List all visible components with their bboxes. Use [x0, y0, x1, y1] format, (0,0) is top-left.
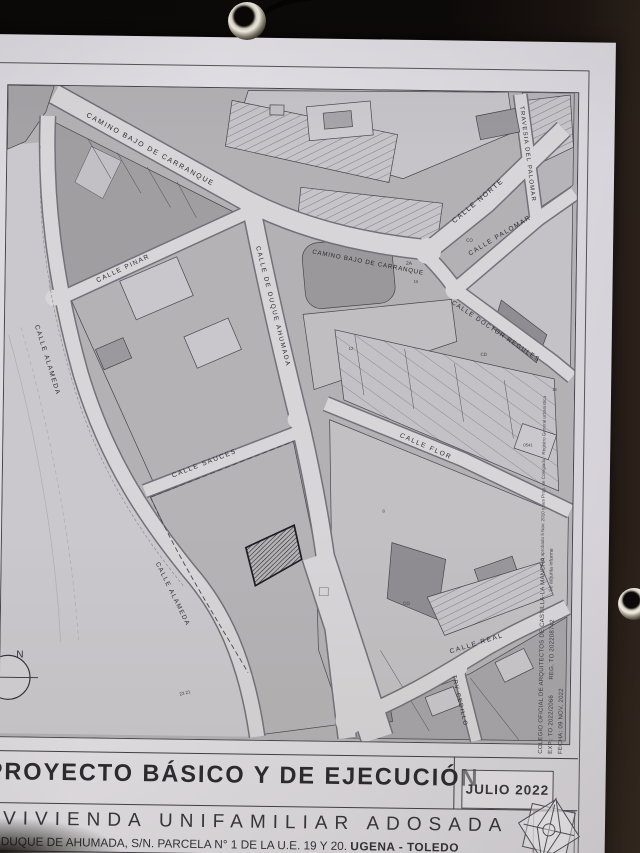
- parcel-number: 12: [349, 346, 354, 351]
- north-label: N: [16, 649, 23, 660]
- cadastral-map: N CAMINO BAJO DE CARRANQUE CALLE NORTE T…: [0, 85, 578, 744]
- parcel-number: 16: [552, 387, 557, 392]
- parcel-number: CO: [466, 238, 473, 243]
- parcel-number: 10: [414, 279, 419, 284]
- visado-date-line: FECHA: 09 NOV. 2022: [558, 688, 565, 754]
- photo-of-plan: N CAMINO BAJO DE CARRANQUE CALLE NORTE T…: [0, 0, 640, 853]
- parcel-number: CD: [481, 352, 488, 357]
- grommet-eyelet-top: [228, 2, 266, 40]
- paper-sheet: N CAMINO BAJO DE CARRANQUE CALLE NORTE T…: [0, 34, 616, 853]
- grommet-eyelet-right: [618, 588, 640, 620]
- parcel-number: CO: [403, 601, 410, 606]
- cadastral-map-frame: N CAMINO BAJO DE CARRANQUE CALLE NORTE T…: [0, 84, 579, 745]
- parcel-number: 2A: [406, 261, 413, 267]
- corner-shadow: [0, 818, 120, 853]
- college-seal-stamp: [512, 791, 587, 853]
- margin-note-informe: Se adjunta informe: [548, 548, 555, 592]
- location-text: UGENA - TOLEDO: [350, 839, 459, 853]
- parcel-number: 0541: [523, 442, 533, 447]
